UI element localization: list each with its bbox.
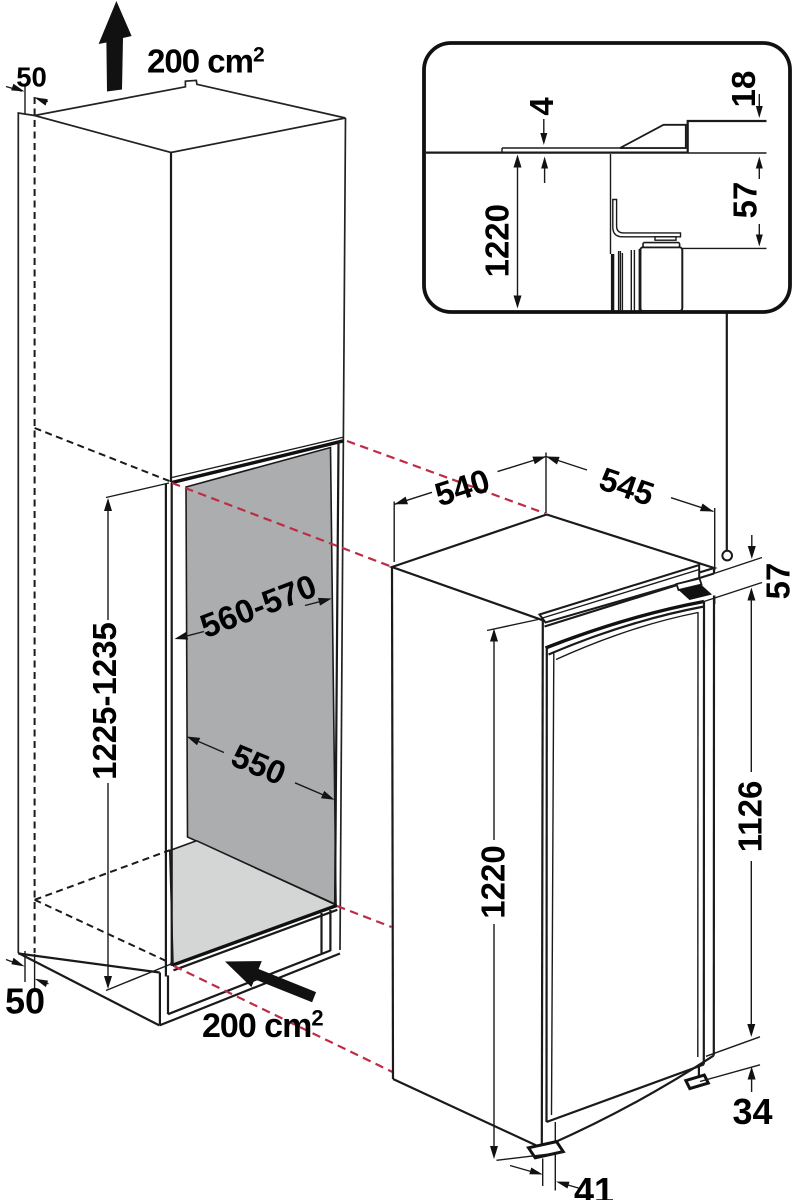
svg-text:1126: 1126	[731, 781, 768, 853]
svg-text:57: 57	[759, 563, 796, 600]
svg-text:34: 34	[732, 1091, 772, 1132]
svg-text:200 cm2: 200 cm2	[202, 1006, 323, 1046]
svg-text:200 cm2: 200 cm2	[147, 43, 264, 80]
svg-text:50: 50	[5, 981, 45, 1022]
svg-text:1220: 1220	[474, 845, 511, 918]
svg-text:4: 4	[523, 97, 560, 116]
svg-text:41: 41	[574, 1170, 614, 1200]
svg-text:1220: 1220	[478, 204, 515, 277]
svg-text:1225-1235: 1225-1235	[86, 622, 123, 780]
svg-text:50: 50	[16, 61, 47, 92]
svg-text:57: 57	[726, 182, 763, 219]
svg-text:18: 18	[725, 71, 762, 108]
